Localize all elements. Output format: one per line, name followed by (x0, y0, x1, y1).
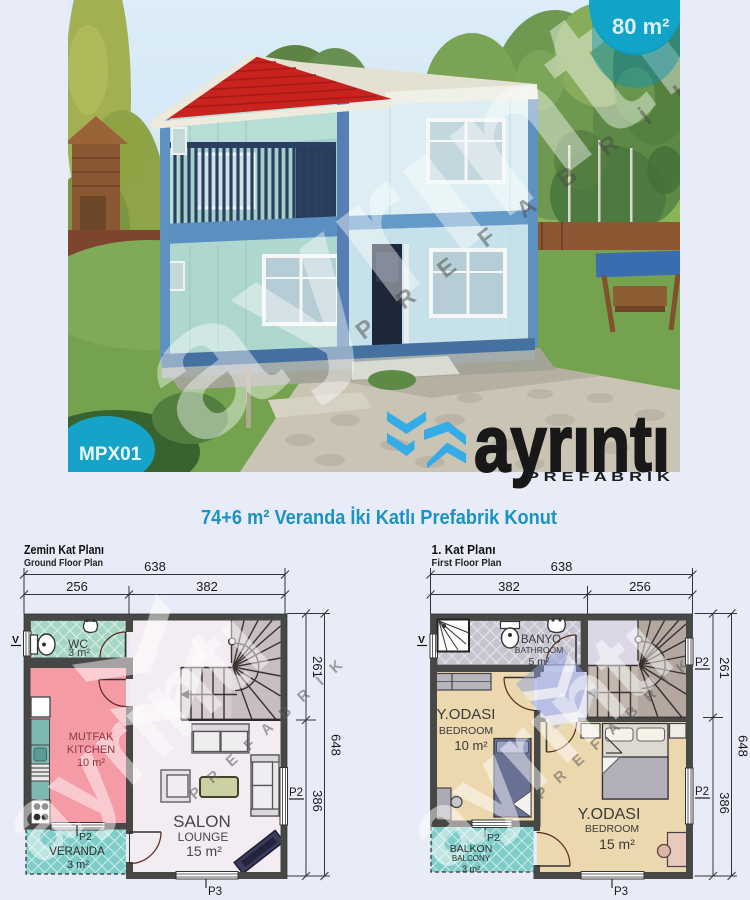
svg-text:P3: P3 (614, 886, 628, 898)
svg-text:First Floor Plan: First Floor Plan (432, 558, 502, 569)
svg-text:386: 386 (717, 792, 732, 814)
svg-text:Y.ODASI: Y.ODASI (578, 806, 641, 823)
svg-text:382: 382 (498, 579, 520, 594)
svg-text:P2: P2 (695, 786, 709, 798)
svg-text:256: 256 (66, 579, 88, 594)
svg-text:LOUNGE: LOUNGE (178, 830, 229, 844)
svg-text:3 m²: 3 m² (68, 647, 90, 659)
svg-text:5 m²: 5 m² (529, 656, 551, 668)
svg-text:BATHROOM: BATHROOM (515, 645, 563, 655)
svg-text:P3: P3 (208, 886, 222, 898)
svg-text:V: V (12, 634, 19, 646)
svg-text:Zemin Kat Planı: Zemin Kat Planı (24, 543, 104, 557)
svg-text:SALON: SALON (173, 812, 231, 831)
svg-text:386: 386 (310, 790, 325, 812)
svg-text:10 m²: 10 m² (454, 738, 488, 753)
svg-text:BALCONY: BALCONY (452, 854, 491, 863)
svg-text:1. Kat Planı: 1. Kat Planı (432, 543, 496, 557)
svg-text:648: 648 (329, 734, 344, 756)
svg-text:638: 638 (551, 559, 573, 574)
svg-text:648: 648 (736, 735, 750, 757)
svg-text:3 m²: 3 m² (67, 859, 89, 871)
svg-text:80 m²: 80 m² (612, 14, 669, 39)
svg-text:74+6 m² Veranda İki Katlı Pref: 74+6 m² Veranda İki Katlı Prefabrik Konu… (201, 506, 557, 529)
svg-text:P R E F A B R İ K: P R E F A B R İ K (527, 469, 671, 484)
svg-text:P2: P2 (79, 831, 92, 843)
svg-text:10 m²: 10 m² (77, 757, 105, 769)
svg-text:MPX01: MPX01 (79, 444, 142, 465)
svg-text:3 m²: 3 m² (462, 864, 480, 874)
svg-text:261: 261 (717, 657, 732, 679)
svg-text:VERANDA: VERANDA (49, 846, 105, 858)
svg-text:V: V (418, 634, 425, 646)
svg-text:P2: P2 (289, 787, 303, 799)
svg-text:P2: P2 (695, 657, 709, 669)
svg-text:KITCHEN: KITCHEN (67, 744, 115, 756)
svg-text:BEDROOM: BEDROOM (439, 725, 493, 737)
svg-text:Ground Floor Plan: Ground Floor Plan (24, 558, 103, 569)
svg-text:15 m²: 15 m² (186, 843, 222, 859)
svg-text:MUTFAK: MUTFAK (69, 731, 114, 743)
svg-text:256: 256 (629, 579, 651, 594)
svg-text:BEDROOM: BEDROOM (585, 823, 639, 835)
svg-text:15 m²: 15 m² (599, 836, 635, 852)
svg-text:638: 638 (144, 559, 166, 574)
svg-text:Y.ODASI: Y.ODASI (437, 706, 496, 723)
